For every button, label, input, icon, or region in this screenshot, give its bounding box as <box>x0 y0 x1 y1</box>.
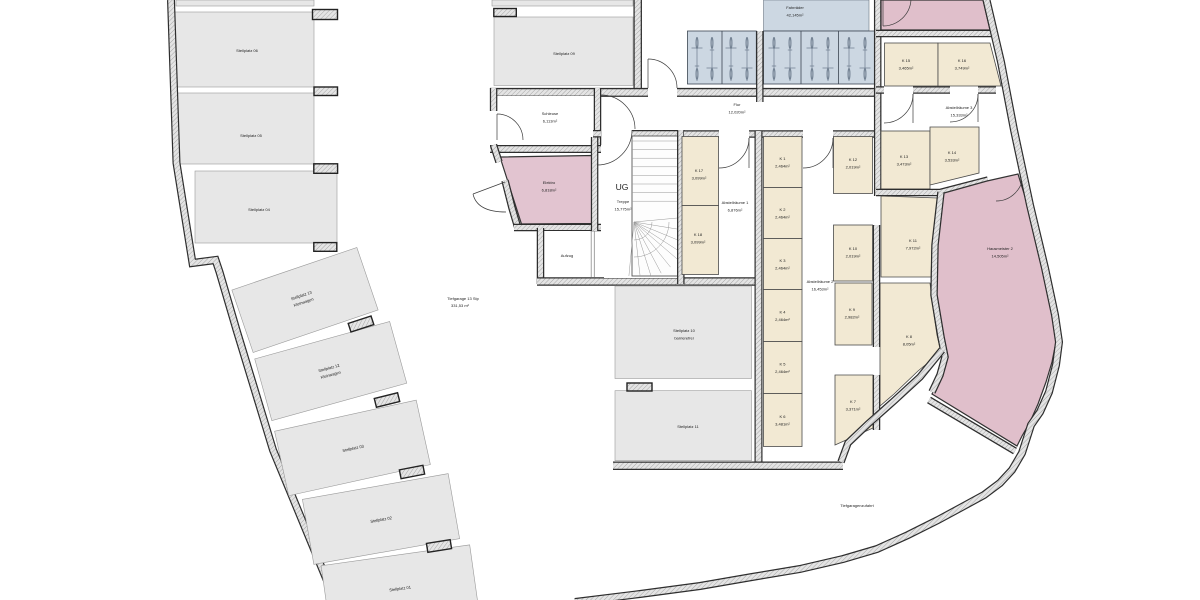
svg-text:barrierefrei: barrierefrei <box>674 336 693 341</box>
svg-text:2,464m²: 2,464m² <box>775 369 790 374</box>
svg-text:K 3: K 3 <box>779 258 786 263</box>
svg-text:Stellplatz 04: Stellplatz 04 <box>248 207 271 212</box>
svg-text:Schleuse: Schleuse <box>542 111 559 116</box>
svg-text:2,019m²: 2,019m² <box>846 254 861 259</box>
svg-text:Tiefgarage 13 Stp: Tiefgarage 13 Stp <box>447 296 479 301</box>
svg-text:2,464m²: 2,464m² <box>775 163 790 168</box>
svg-text:Stellplatz 09: Stellplatz 09 <box>553 51 576 56</box>
svg-text:Hausmeister 2: Hausmeister 2 <box>987 246 1014 251</box>
svg-text:3,481m²: 3,481m² <box>775 421 790 426</box>
svg-text:Abstellräume 2: Abstellräume 2 <box>807 279 834 284</box>
svg-text:Abstellräume 1: Abstellräume 1 <box>722 200 749 205</box>
svg-text:K 13: K 13 <box>900 154 909 159</box>
svg-text:16,453m²: 16,453m² <box>812 287 830 292</box>
svg-text:6,818m²: 6,818m² <box>542 188 557 193</box>
svg-text:7,972m²: 7,972m² <box>906 246 921 251</box>
svg-text:3,371m²: 3,371m² <box>846 407 861 412</box>
svg-text:12,020m²: 12,020m² <box>729 110 747 115</box>
svg-text:K 9: K 9 <box>849 307 856 312</box>
svg-text:2,982m²: 2,982m² <box>845 315 860 320</box>
svg-text:Stellplatz 11: Stellplatz 11 <box>677 424 699 429</box>
svg-text:K 12: K 12 <box>849 157 858 162</box>
svg-text:2,464m²: 2,464m² <box>775 214 790 219</box>
svg-text:K 15: K 15 <box>902 58 911 63</box>
svg-text:K 4: K 4 <box>779 309 786 314</box>
svg-text:K 11: K 11 <box>909 238 918 243</box>
svg-text:6,113m²: 6,113m² <box>543 119 558 124</box>
svg-text:Flur: Flur <box>734 102 742 107</box>
svg-text:331,53 m²: 331,53 m² <box>451 303 470 308</box>
svg-text:K 7: K 7 <box>850 399 857 404</box>
svg-text:Stellplatz 06: Stellplatz 06 <box>236 48 259 53</box>
svg-text:K 18: K 18 <box>694 232 703 237</box>
svg-text:K 14: K 14 <box>948 150 957 155</box>
svg-text:Treppe: Treppe <box>617 199 630 204</box>
svg-text:K 17: K 17 <box>695 168 704 173</box>
svg-text:Tiefgaragenzufahrt: Tiefgaragenzufahrt <box>840 503 874 508</box>
svg-text:14,505m²: 14,505m² <box>992 254 1010 259</box>
svg-text:K 8: K 8 <box>906 334 913 339</box>
svg-text:3,099m²: 3,099m² <box>692 176 707 181</box>
svg-text:3,533m²: 3,533m² <box>945 158 960 163</box>
svg-text:42,145m²: 42,145m² <box>787 13 805 18</box>
svg-text:2,019m²: 2,019m² <box>846 165 861 170</box>
svg-text:K 6: K 6 <box>779 414 786 419</box>
svg-text:Aufzug: Aufzug <box>561 253 573 258</box>
svg-text:3,465m²: 3,465m² <box>899 66 914 71</box>
svg-text:6,876m²: 6,876m² <box>728 208 743 213</box>
svg-text:UG: UG <box>616 182 629 192</box>
svg-text:Elektro: Elektro <box>543 180 556 185</box>
svg-text:Abstellräume 3: Abstellräume 3 <box>946 105 973 110</box>
svg-text:3,099m²: 3,099m² <box>691 240 706 245</box>
svg-text:K 16: K 16 <box>958 58 967 63</box>
svg-text:3,749m²: 3,749m² <box>955 66 970 71</box>
svg-text:2,464m²: 2,464m² <box>775 265 790 270</box>
svg-text:K 1: K 1 <box>779 156 786 161</box>
svg-text:K 5: K 5 <box>779 361 786 366</box>
svg-text:Stellplatz 05: Stellplatz 05 <box>240 133 263 138</box>
svg-text:Fahrräder: Fahrräder <box>786 5 804 10</box>
svg-text:3,473m²: 3,473m² <box>897 162 912 167</box>
svg-text:K 2: K 2 <box>779 207 786 212</box>
svg-text:K 10: K 10 <box>849 246 858 251</box>
svg-text:2,464m²: 2,464m² <box>775 317 790 322</box>
svg-text:15,775m²: 15,775m² <box>615 207 633 212</box>
svg-text:8,05m²: 8,05m² <box>903 342 916 347</box>
svg-text:15,333m²: 15,333m² <box>951 113 969 118</box>
svg-text:Stellplatz 10: Stellplatz 10 <box>673 328 696 333</box>
